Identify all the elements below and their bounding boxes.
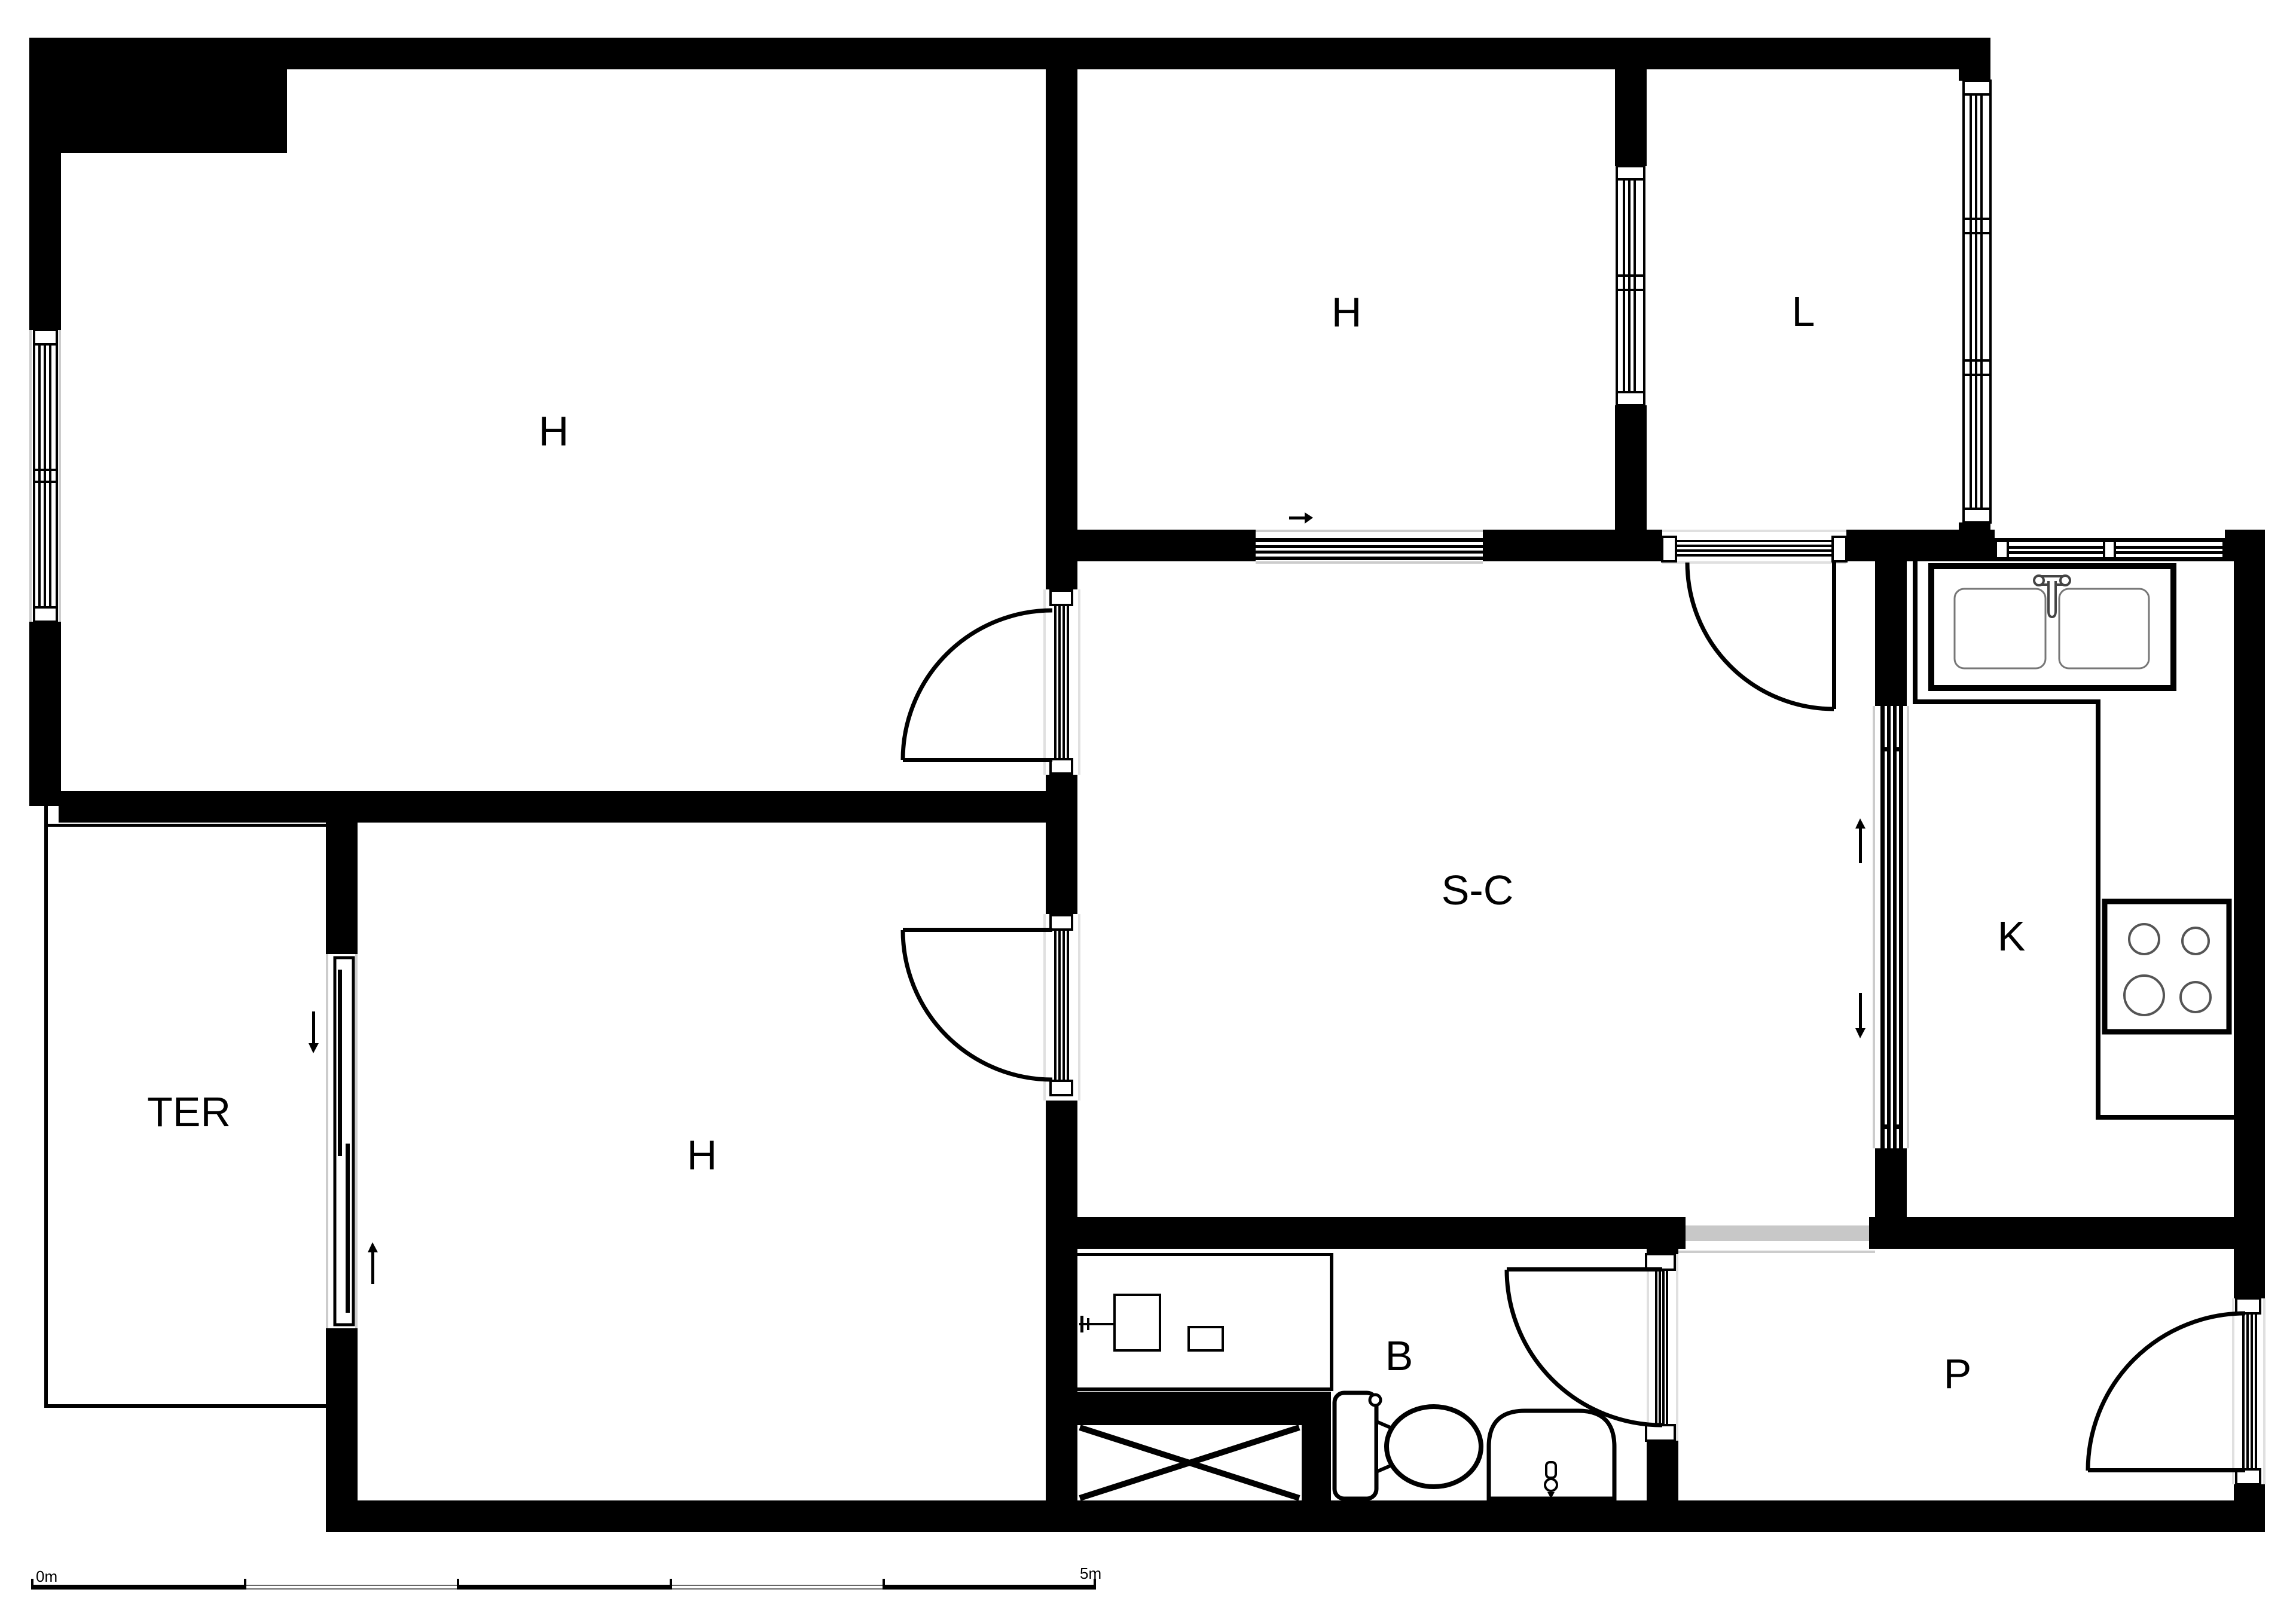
svg-text:K: K — [1998, 913, 2026, 959]
svg-text:S-C: S-C — [1442, 867, 1514, 913]
svg-text:5m: 5m — [1080, 1564, 1101, 1582]
svg-text:0m: 0m — [36, 1567, 57, 1585]
svg-text:H: H — [1332, 289, 1362, 335]
svg-text:B: B — [1385, 1332, 1413, 1379]
svg-text:TER: TER — [147, 1089, 231, 1135]
svg-text:L: L — [1792, 288, 1815, 335]
svg-text:H: H — [687, 1132, 717, 1178]
svg-text:H: H — [539, 408, 569, 454]
svg-text:P: P — [1944, 1350, 1972, 1397]
